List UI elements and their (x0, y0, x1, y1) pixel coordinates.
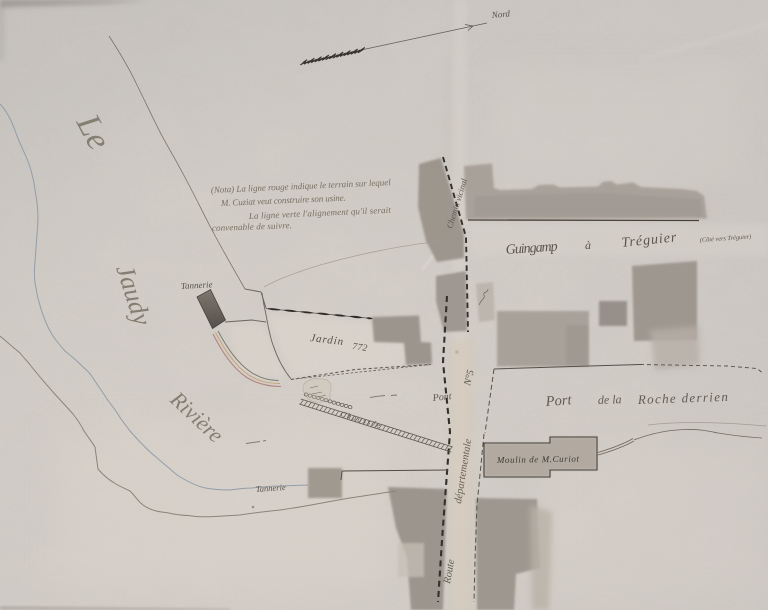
svg-text:Pont: Pont (431, 391, 452, 404)
svg-text:Port: Port (544, 392, 573, 410)
svg-text:de la: de la (598, 392, 622, 407)
svg-text:à: à (585, 238, 591, 252)
svg-text:Tannerie: Tannerie (181, 279, 213, 291)
svg-text:Roche derrien: Roche derrien (637, 389, 728, 407)
svg-text:772: 772 (352, 342, 368, 354)
svg-text:Moulin de M.Curiot: Moulin de M.Curiot (496, 454, 580, 465)
svg-text:Nord: Nord (490, 8, 510, 20)
svg-text:Tannerie: Tannerie (255, 482, 286, 494)
